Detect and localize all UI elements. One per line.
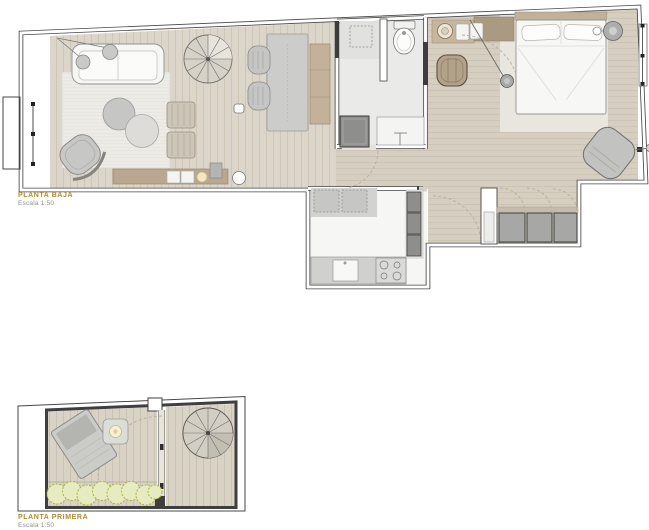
- spiral-staircase: [184, 35, 232, 83]
- tall-cabinets: [406, 190, 423, 258]
- wardrobe-module: [554, 213, 577, 242]
- kitchen-sink: [333, 260, 358, 281]
- wardrobe-module: [499, 213, 525, 242]
- door-frame-tick: [31, 102, 35, 106]
- spiral-staircase-upper: [183, 408, 233, 458]
- first-floor-scale: Escala 1:50: [18, 522, 88, 529]
- storage-bench: [310, 44, 330, 124]
- pillow: [522, 24, 561, 41]
- ground-floor-title: PLANTA BAJA: [18, 192, 73, 199]
- bedroom-window: [639, 24, 647, 86]
- cooktop: [376, 258, 406, 283]
- floor-lamp: [233, 172, 246, 185]
- toilet: [394, 21, 416, 54]
- dining-chair: [248, 46, 270, 74]
- shower-zone: [340, 21, 382, 59]
- plan-planta-baja: [3, 7, 649, 287]
- washer: [340, 116, 369, 147]
- slat-chair: [167, 132, 195, 158]
- ground-floor-label: PLANTA BAJA Escala 1:50: [18, 192, 73, 207]
- upper-cabinet: [342, 190, 367, 212]
- vanity-sink: [377, 117, 424, 145]
- vanity-tray: [456, 24, 469, 40]
- terrace-side-table: [103, 419, 128, 444]
- wardrobe-shelf: [497, 207, 578, 213]
- slat-chair: [167, 102, 195, 128]
- upper-cabinet: [314, 190, 339, 212]
- plan-planta-primera: [18, 397, 245, 512]
- entry-hall-floor: [428, 189, 483, 245]
- stool-pouf: [437, 55, 467, 86]
- ground-floor-scale: Escala 1:50: [18, 200, 73, 207]
- partition-tick: [160, 444, 164, 450]
- first-floor-label: PLANTA PRIMERA Escala 1:50: [18, 514, 88, 529]
- tv-box: [210, 163, 222, 178]
- wardrobe-module: [527, 213, 552, 242]
- hall-niche: [484, 212, 494, 242]
- plant: [148, 485, 162, 499]
- pouf: [126, 115, 159, 148]
- bowl: [197, 172, 207, 182]
- bathroom-partition-wall: [380, 19, 387, 81]
- double-bed: [515, 12, 607, 114]
- pendant-light: [76, 55, 90, 69]
- floor-plans-drawing: [0, 0, 649, 530]
- headboard: [515, 12, 607, 20]
- wall-notch: [148, 398, 162, 411]
- porch-outline: [3, 97, 20, 169]
- bedroom-vanity: [432, 17, 514, 43]
- wall-poche-bathroom: [335, 21, 339, 58]
- floor-plan-sheet: PLANTA BAJA Escala 1:50 PLANTA PRIMERA E…: [0, 0, 649, 530]
- pendant-light: [103, 45, 118, 60]
- wall-poche-bedroom: [423, 42, 428, 85]
- floor-outlet: [234, 104, 244, 113]
- door-frame-tick: [31, 132, 35, 136]
- door-frame-tick: [31, 162, 35, 166]
- dining-chair: [248, 82, 270, 110]
- first-floor-title: PLANTA PRIMERA: [18, 514, 88, 521]
